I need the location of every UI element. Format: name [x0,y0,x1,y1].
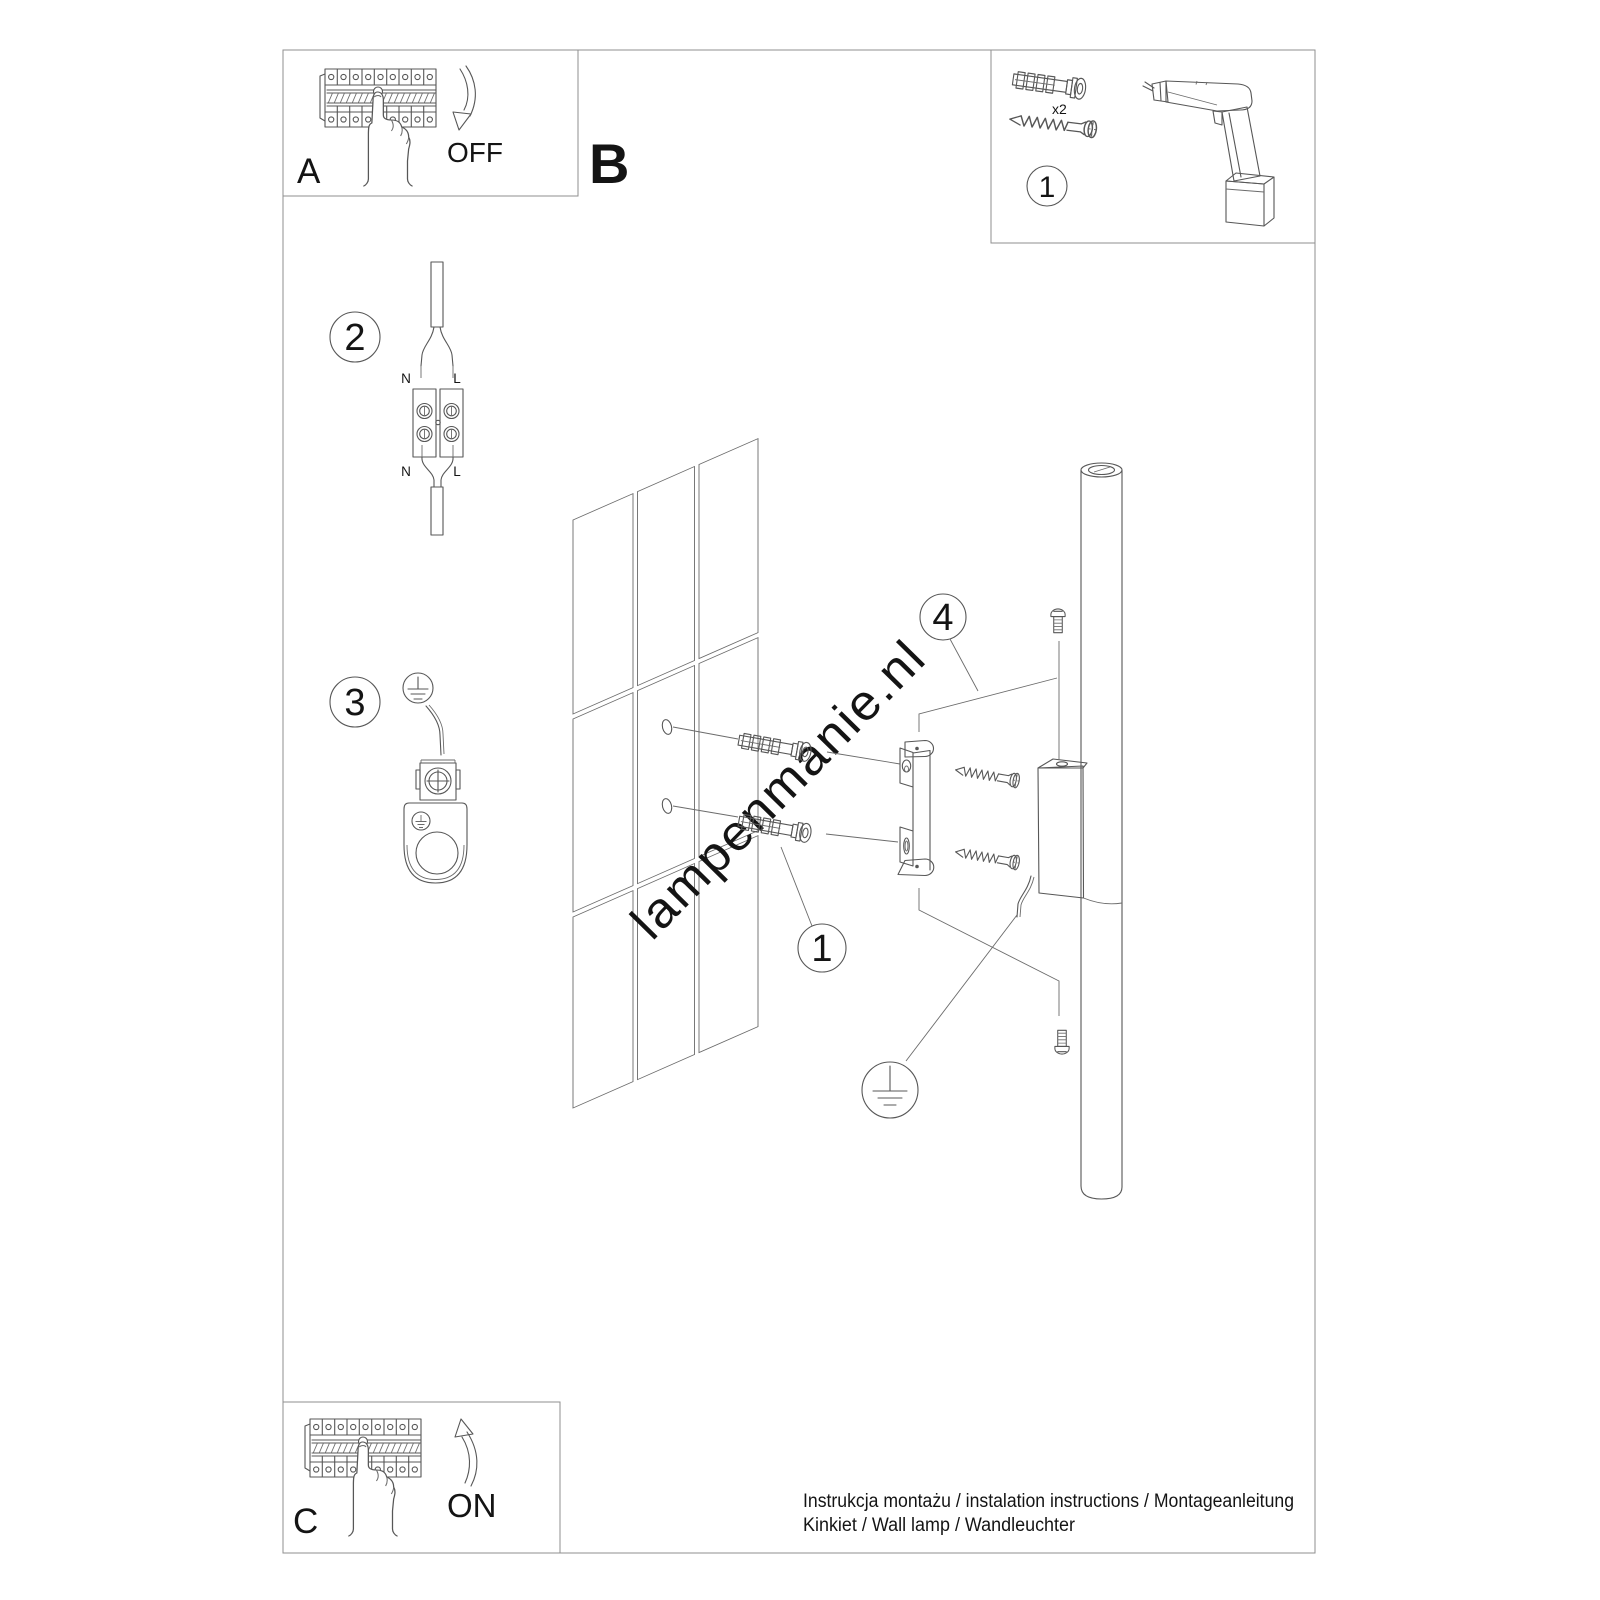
lamp-earth-wire-2 [1020,877,1034,917]
panel-c-label: C [293,1502,318,1541]
wall-tiles [573,439,758,1108]
tools-panel-box [991,50,1315,243]
step-2-callout: 2 [330,312,380,362]
bracket-screw-bottom [954,845,1020,871]
instruction-drawing: A OFF B x2 1 2 [0,0,1600,1600]
anchor-quantity: x2 [1052,101,1067,117]
wire-label-l-bottom: L [453,464,461,479]
svg-text:4: 4 [932,597,953,639]
wire-label-n-top: N [401,371,411,386]
watermark: lampenmanie.nl [620,629,937,950]
wall-bracket [898,741,934,876]
svg-text:1: 1 [1039,171,1056,204]
callout-4-leaders [919,639,1057,732]
wall-plug-icon [1012,69,1087,100]
step-3: 3 [330,673,467,883]
tools-callout-1: 1 [1027,166,1067,206]
tools-panel: x2 1 [1009,69,1274,226]
earth-symbol-callout [862,1062,918,1118]
on-arrow-icon [455,1419,477,1486]
wall-hole-top [661,719,673,736]
earth-symbol-icon [403,673,433,703]
panel-a-label: A [297,152,321,191]
svg-text:1: 1 [811,928,832,970]
footer-line1: Instrukcja montażu / instalation instruc… [803,1491,1294,1512]
earth-wire [426,706,441,755]
footer: Instrukcja montażu / instalation instruc… [803,1491,1294,1536]
earth-clamp [416,760,460,800]
wall-hole-bottom [661,798,673,815]
panel-c: C ON [293,1419,497,1541]
step-2: 2 N L N L [330,262,463,535]
lamp-earth-wire [1017,876,1031,917]
junction-box [1038,759,1122,904]
panel-a-box [283,50,578,196]
bracket-screw-top [954,763,1020,789]
machine-screw-bottom [1055,1030,1069,1054]
svg-text:3: 3 [344,682,365,724]
drill-icon [1143,81,1274,226]
lamp-tube [1081,463,1122,1199]
earth-leader [906,915,1017,1061]
assembly-callout-1: 1 [798,924,846,972]
instruction-sheet: A OFF B x2 1 2 [0,0,1600,1600]
panel-c-action: ON [447,1487,497,1524]
lamp-bracket-plate [404,803,467,883]
machine-screw-top [1051,609,1065,633]
wire-label-n-bottom: N [401,464,411,479]
panel-a-action: OFF [447,137,503,168]
callout-1-leader [781,847,812,926]
assembly-callout-4: 4 [920,594,966,640]
svg-text:2: 2 [344,317,365,359]
panel-a: A OFF [297,66,503,191]
step-3-callout: 3 [330,677,380,727]
terminal-block-diagram [413,262,463,535]
off-arrow-icon [453,66,475,130]
section-b-label: B [589,132,629,195]
wire-label-l-top: L [453,371,461,386]
footer-line2: Kinkiet / Wall lamp / Wandleuchter [803,1515,1076,1536]
